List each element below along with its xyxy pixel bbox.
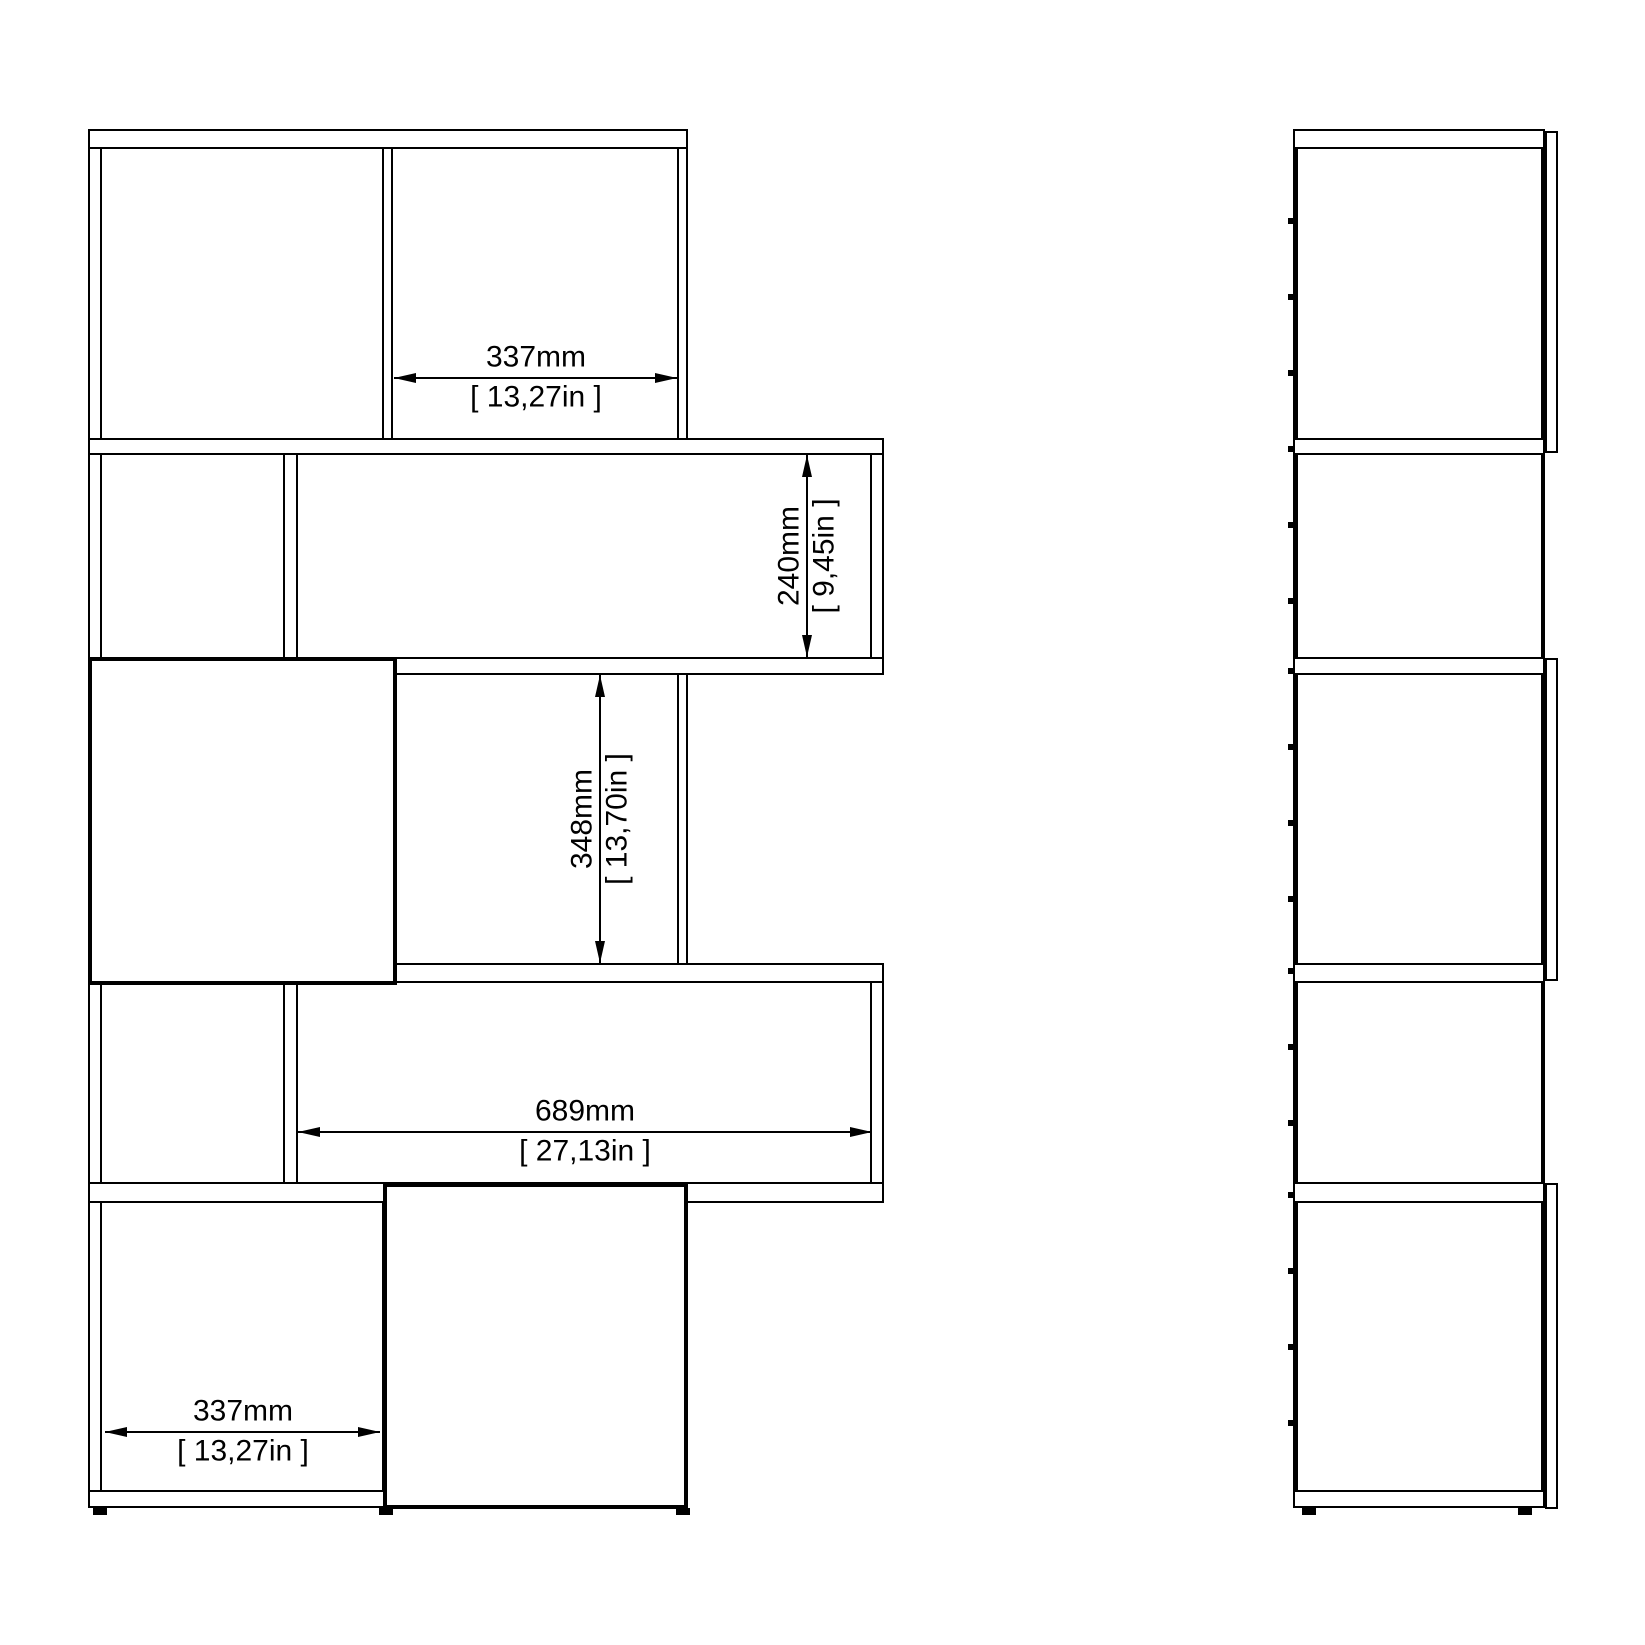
side-door-strip-bottom <box>1545 1183 1558 1509</box>
dim-arrow-up-icon <box>595 675 605 697</box>
pin-hole-tick <box>1288 522 1294 528</box>
pin-hole-tick <box>1288 446 1294 452</box>
side-door-strip-middle <box>1545 658 1558 981</box>
dim-arrow-left-icon <box>394 373 416 383</box>
side-top-panel <box>1293 129 1545 149</box>
dim-arrow-right-icon <box>655 373 677 383</box>
row2-left-divider <box>283 453 298 659</box>
row1-right-panel <box>677 147 688 440</box>
pin-hole-tick <box>1288 1420 1294 1426</box>
dim-label-mm: 240mm <box>772 498 807 613</box>
front-foot-middle <box>379 1508 393 1515</box>
side-foot-right <box>1518 1508 1532 1515</box>
left-cabinet-door <box>88 657 397 985</box>
pin-hole-tick <box>1288 370 1294 376</box>
dim-arrow-up-icon <box>802 455 812 477</box>
side-shelf-b <box>1293 657 1545 675</box>
pin-hole-tick <box>1288 1268 1294 1274</box>
side-shelf-c <box>1293 963 1545 983</box>
side-back-edge <box>1293 129 1298 1508</box>
dim-label-in: [ 13,27in ] <box>177 1431 309 1471</box>
dim-label-in: [ 27,13in ] <box>519 1131 651 1171</box>
dim-arrow-down-icon <box>802 635 812 657</box>
pin-hole-tick <box>1288 1120 1294 1126</box>
side-door-strip-top <box>1545 131 1558 453</box>
pin-hole-tick <box>1288 1344 1294 1350</box>
shelf-a <box>88 438 884 455</box>
technical-drawing-canvas: 337mm [ 13,27in ] 240mm [ 9,45in ] 348mm… <box>0 0 1645 1645</box>
pin-hole-tick <box>1288 896 1294 902</box>
dim-label-in: [ 13,27in ] <box>470 377 602 417</box>
pin-hole-tick <box>1288 668 1294 674</box>
dim-arrow-right-icon <box>850 1127 872 1137</box>
dim-label-mm: 337mm <box>177 1391 309 1431</box>
row3-right-panel <box>677 673 688 965</box>
pin-hole-tick <box>1288 294 1294 300</box>
dim-label-mm: 337mm <box>470 337 602 377</box>
pin-hole-tick <box>1288 968 1294 974</box>
row4-left-divider <box>283 981 298 1184</box>
row4-right-panel <box>870 981 884 1184</box>
pin-hole-tick <box>1288 820 1294 826</box>
pin-hole-tick <box>1288 218 1294 224</box>
top-panel <box>88 129 688 149</box>
dim-label-mm: 689mm <box>519 1091 651 1131</box>
dim-label-in: [ 9,45in ] <box>807 498 842 613</box>
front-foot-right <box>676 1508 690 1515</box>
side-shelf-a <box>1293 438 1545 455</box>
dim-arrow-left-icon <box>298 1127 320 1137</box>
right-cabinet-door <box>383 1183 688 1509</box>
dim-arrow-left-icon <box>105 1427 127 1437</box>
side-shelf-d <box>1293 1182 1545 1203</box>
dim-arrow-down-icon <box>595 941 605 963</box>
side-bottom-panel <box>1293 1490 1545 1508</box>
front-foot-left <box>93 1508 107 1515</box>
dim-label-in: [ 13,70in ] <box>600 753 635 885</box>
row2-right-panel <box>870 453 884 659</box>
pin-hole-tick <box>1288 1044 1294 1050</box>
side-foot-left <box>1302 1508 1316 1515</box>
dim-arrow-right-icon <box>358 1427 380 1437</box>
dim-label-mm: 348mm <box>565 753 600 885</box>
pin-hole-tick <box>1288 598 1294 604</box>
pin-hole-tick <box>1288 1192 1294 1198</box>
pin-hole-tick <box>1288 744 1294 750</box>
row1-center-divider <box>382 147 393 440</box>
